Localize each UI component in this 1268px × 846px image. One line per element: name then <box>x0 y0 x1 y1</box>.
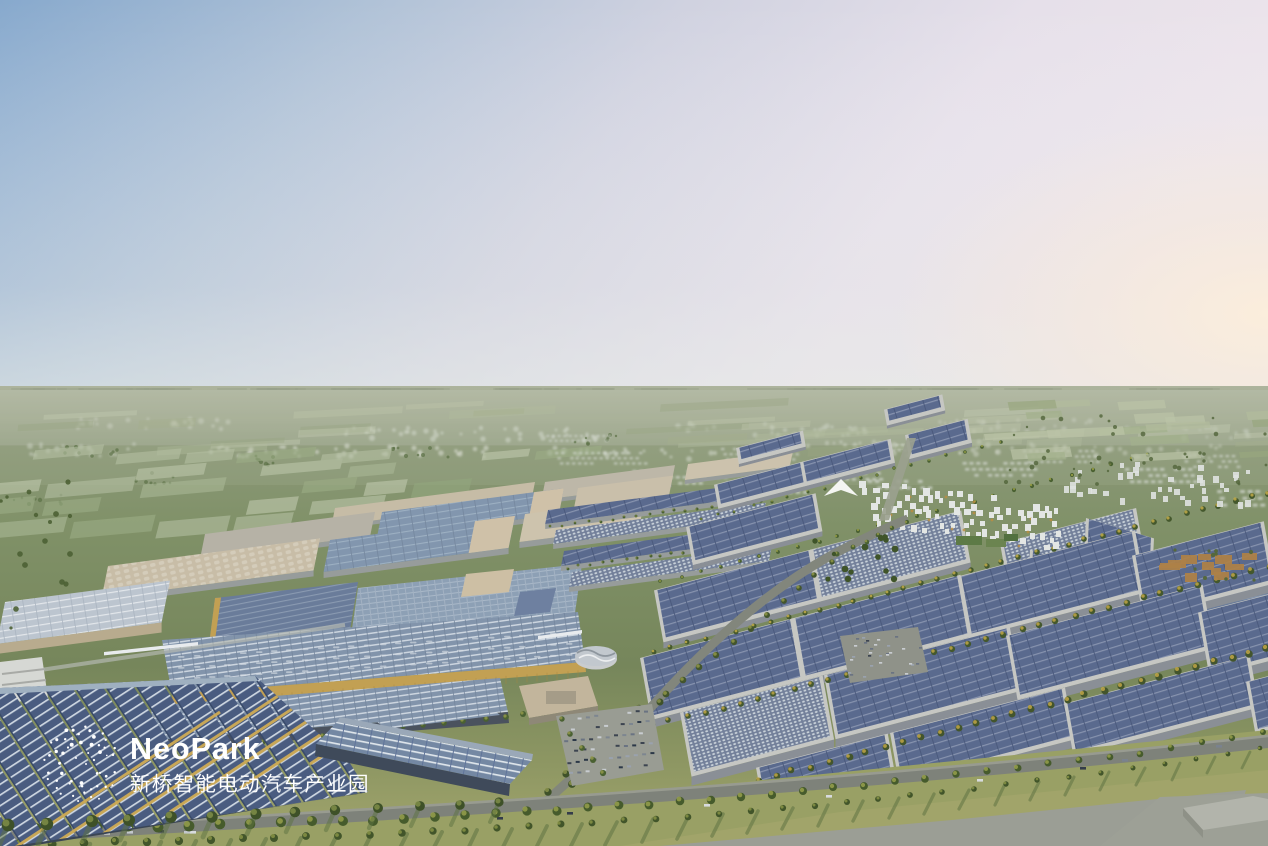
svg-text:NeoPark: NeoPark <box>130 732 261 766</box>
